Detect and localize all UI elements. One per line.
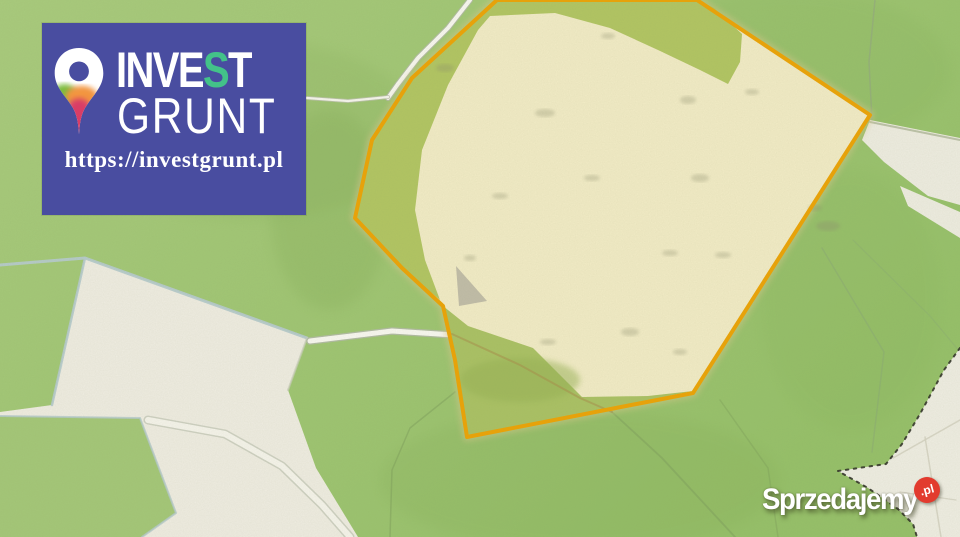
brand-url: https://investgrunt.pl bbox=[42, 147, 306, 173]
brand-name-line2: GRUNT bbox=[117, 91, 277, 141]
listing-map-image: INVEST GRUNT https://investgrunt.pl Sprz… bbox=[0, 0, 960, 537]
watermark-text: Sprzedajemy bbox=[762, 483, 917, 517]
sprzedajemy-watermark: Sprzedajemy .pl bbox=[762, 483, 931, 517]
investgrunt-logo-overlay: INVEST GRUNT https://investgrunt.pl bbox=[42, 23, 306, 215]
location-pin-icon bbox=[52, 43, 106, 143]
